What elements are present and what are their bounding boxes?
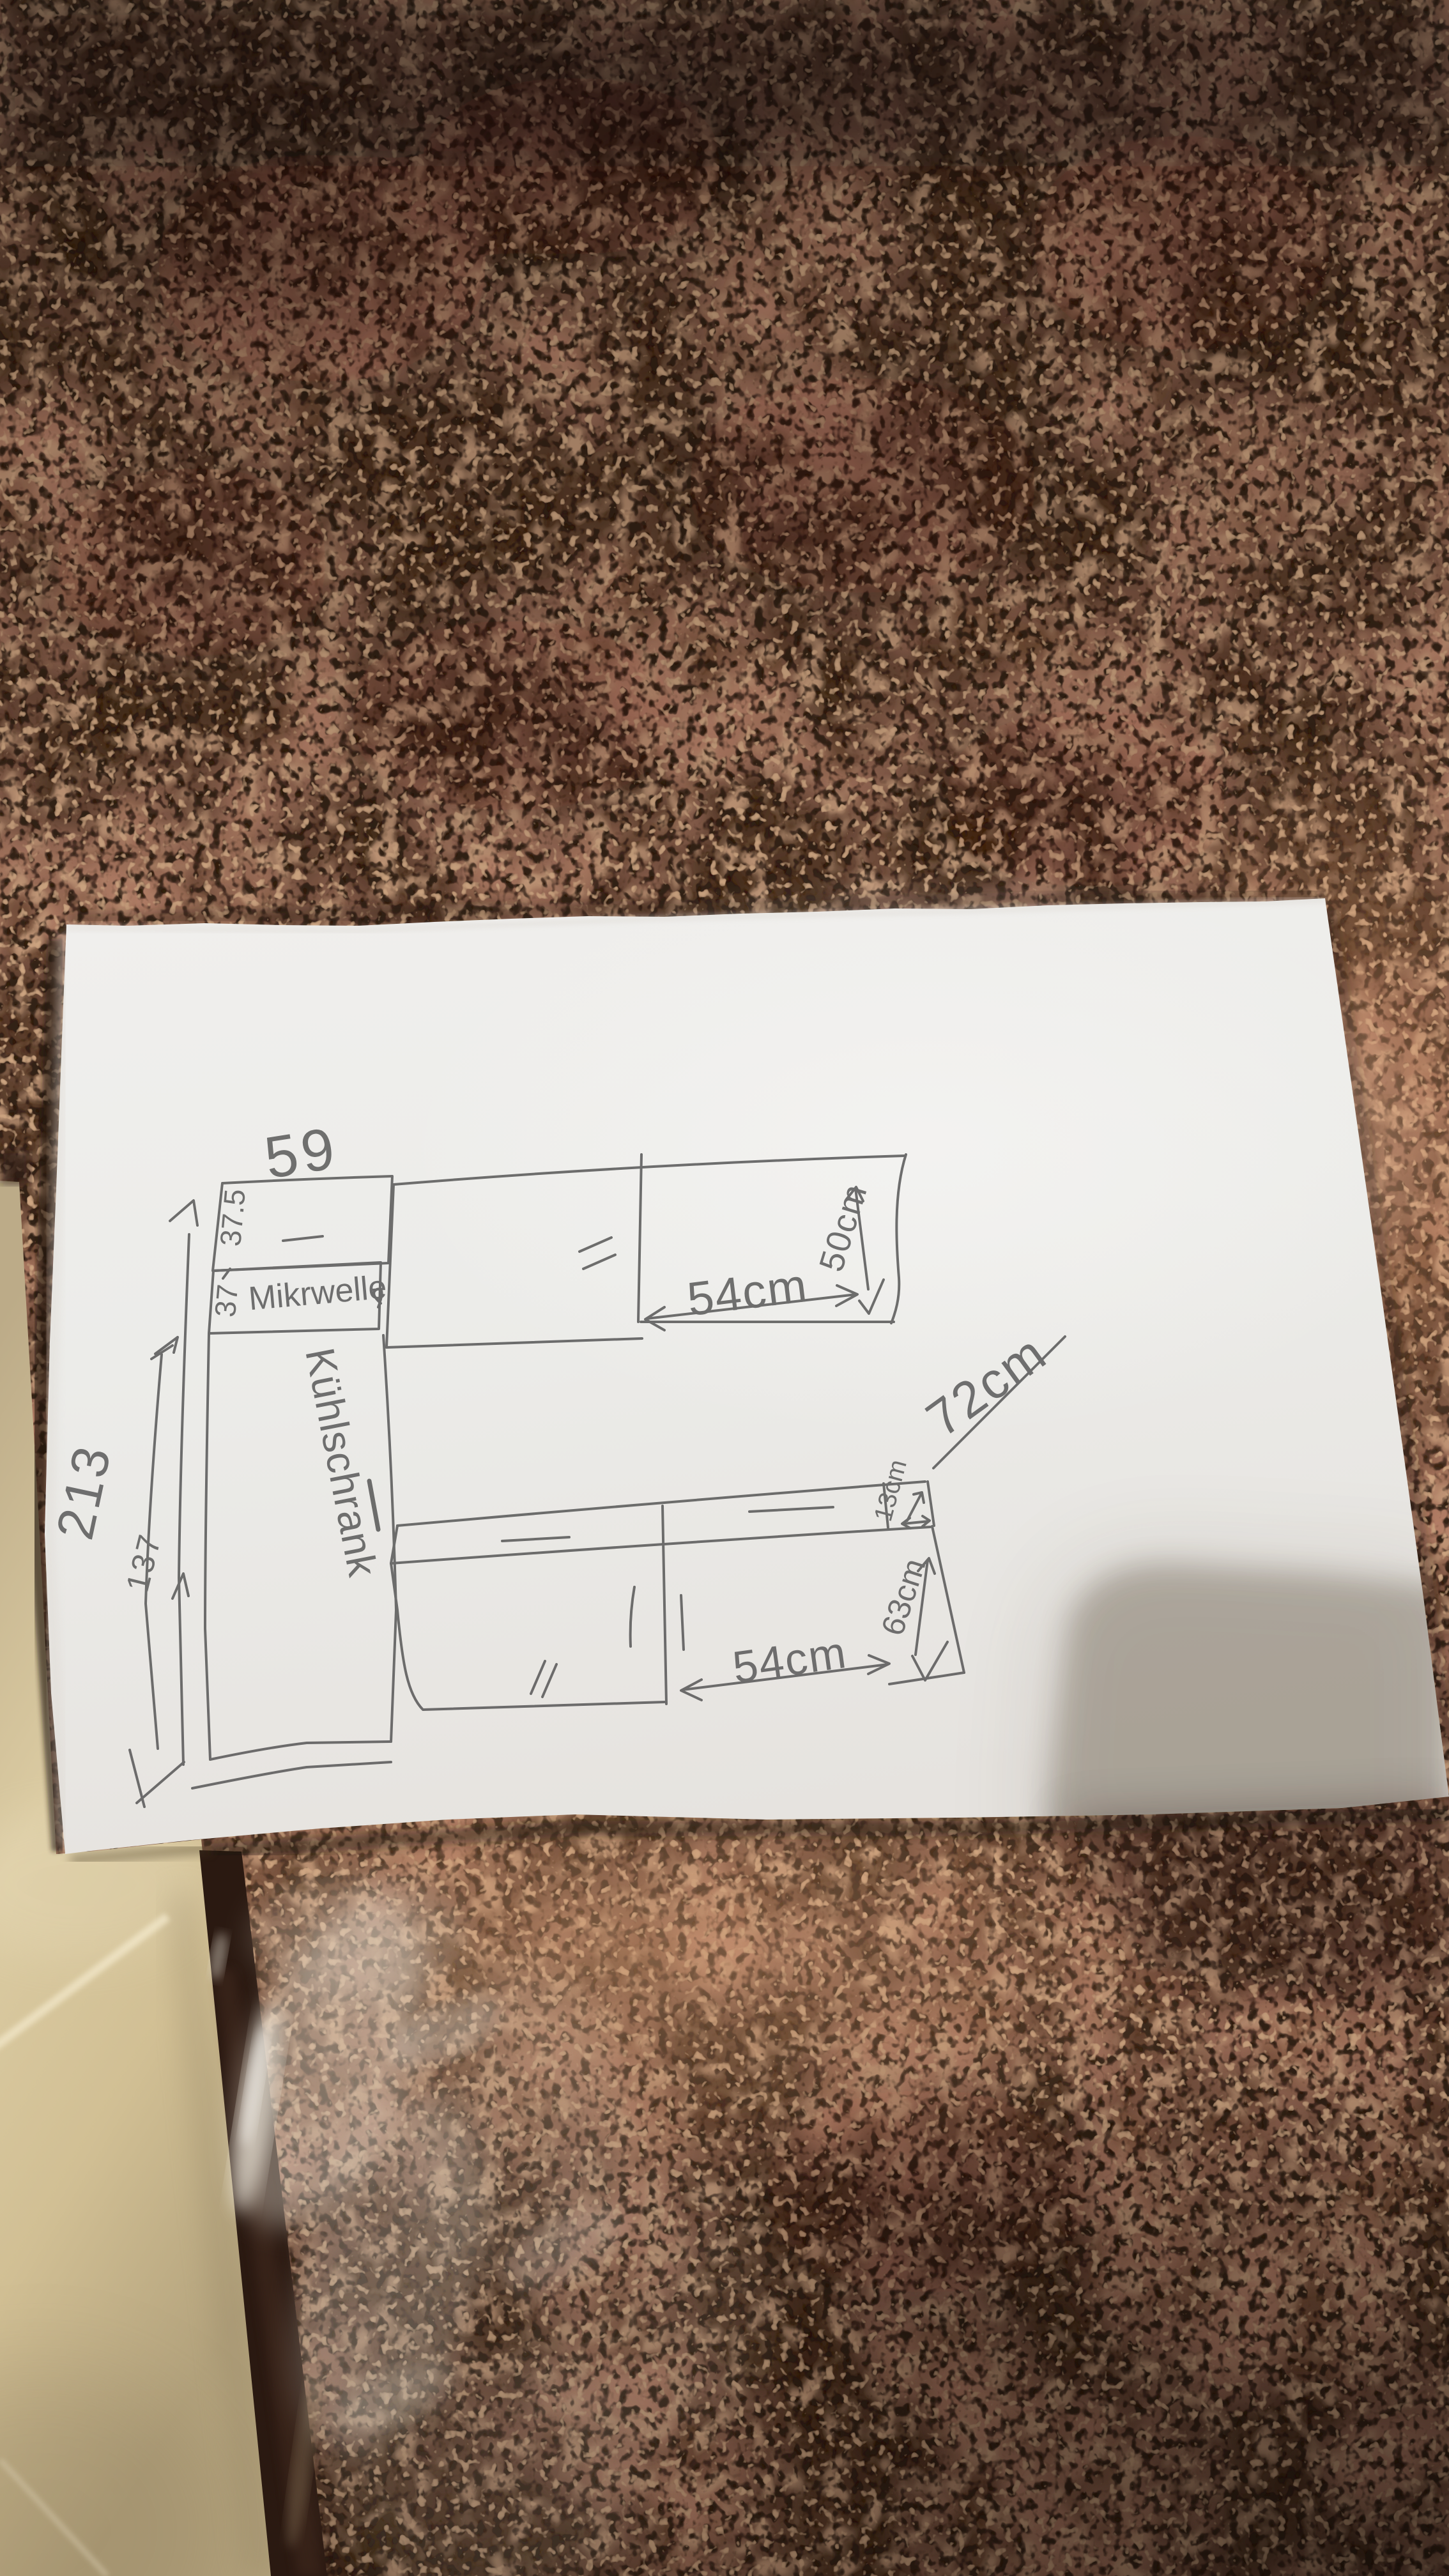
svg-text:37: 37 — [208, 1283, 244, 1319]
svg-text:37.5: 37.5 — [213, 1188, 252, 1248]
